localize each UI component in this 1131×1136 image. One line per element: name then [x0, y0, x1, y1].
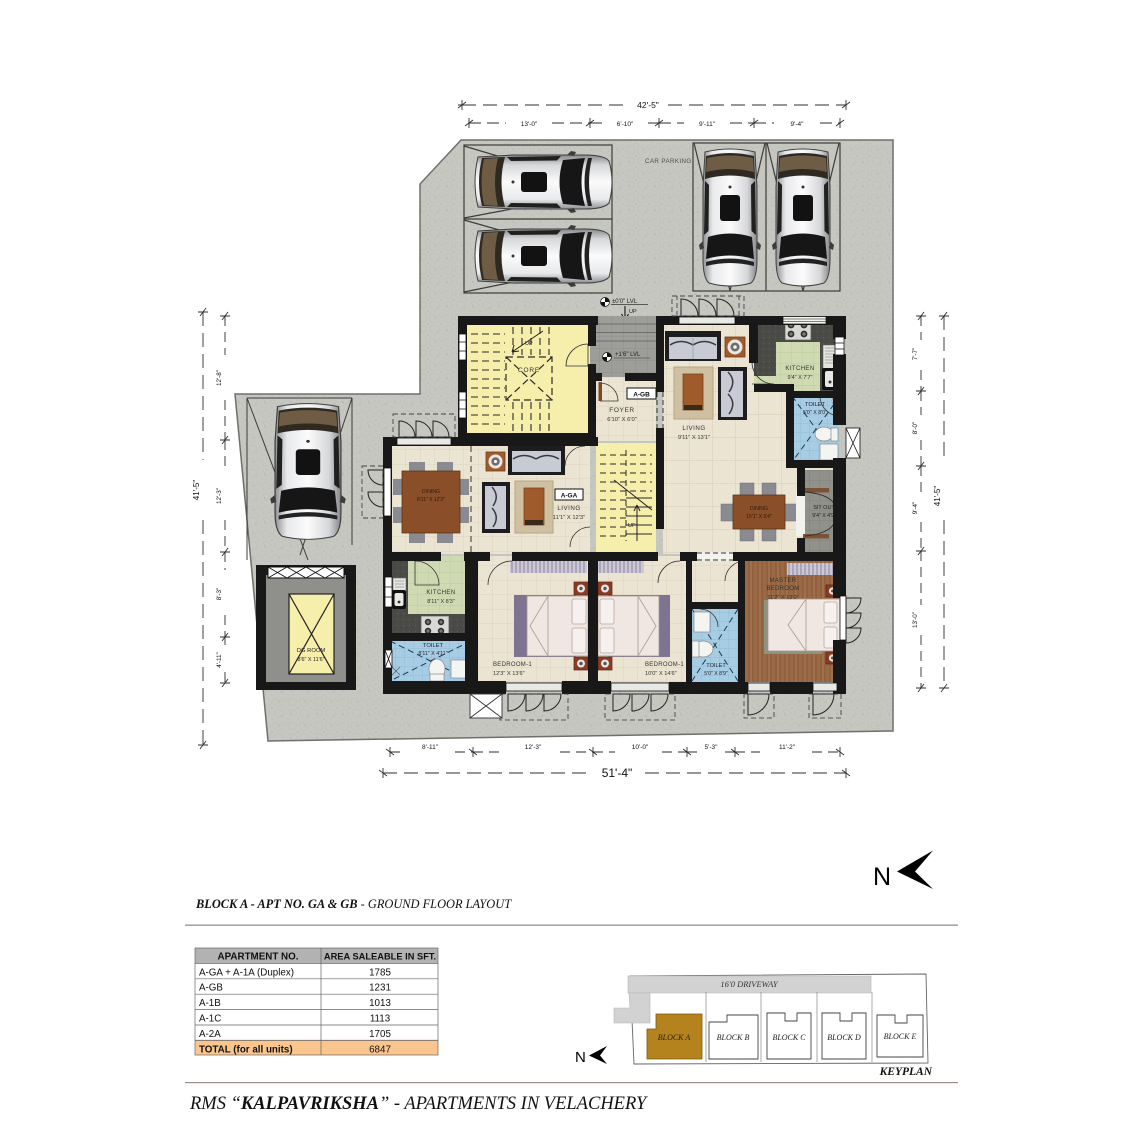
svg-text:6'-10": 6'-10": [617, 121, 634, 128]
svg-text:1705: 1705: [369, 1029, 391, 1040]
svg-text:5'0" X 8'0": 5'0" X 8'0": [803, 410, 827, 416]
svg-text:A-1B: A-1B: [199, 998, 221, 1009]
svg-text:TOTAL (for all units): TOTAL (for all units): [199, 1044, 293, 1055]
svg-text:12'-3": 12'-3": [216, 488, 223, 504]
svg-text:BLOCK A: BLOCK A: [658, 1033, 691, 1042]
svg-text:FOYER: FOYER: [609, 407, 634, 414]
svg-text:11'2" X 13'0": 11'2" X 13'0": [767, 595, 798, 601]
svg-text:16'0 DRIVEWAY: 16'0 DRIVEWAY: [720, 979, 778, 989]
svg-text:4'-11": 4'-11": [216, 652, 223, 668]
svg-text:DINING: DINING: [422, 489, 440, 495]
svg-text:9'11" X 13'1": 9'11" X 13'1": [678, 435, 710, 441]
svg-text:BEDROOM: BEDROOM: [766, 586, 799, 592]
svg-text:BLOCK A - APT NO. GA & GB - GR: BLOCK A - APT NO. GA & GB - GROUND FLOOR…: [195, 897, 512, 911]
svg-text:BEDROOM-1: BEDROOM-1: [493, 662, 532, 668]
svg-text:12'3" X 13'6": 12'3" X 13'6": [493, 671, 525, 677]
svg-text:15'1" X 9'4": 15'1" X 9'4": [746, 514, 772, 520]
svg-text:A-2A: A-2A: [199, 1029, 221, 1040]
svg-text:42'-5": 42'-5": [637, 100, 659, 110]
svg-text:BLOCK C: BLOCK C: [772, 1033, 806, 1042]
svg-text:8'-11": 8'-11": [422, 744, 439, 751]
svg-text:9'-11": 9'-11": [699, 121, 716, 128]
svg-text:DINING: DINING: [750, 506, 768, 512]
svg-text:8'11" X 12'3": 8'11" X 12'3": [417, 497, 445, 503]
svg-text:TOILET: TOILET: [423, 643, 444, 649]
svg-text:UP: UP: [525, 341, 533, 347]
svg-text:A-GA: A-GA: [561, 493, 578, 500]
svg-text:6847: 6847: [369, 1044, 391, 1055]
svg-text:10'0" X 14'6": 10'0" X 14'6": [645, 671, 677, 677]
svg-text:CAR PARKING: CAR PARKING: [645, 158, 692, 165]
svg-text:CORE: CORE: [518, 367, 540, 374]
svg-text:1113: 1113: [370, 1014, 391, 1025]
svg-text:13'-0": 13'-0": [521, 121, 538, 128]
svg-text:A-1C: A-1C: [199, 1014, 221, 1025]
svg-text:11'-2": 11'-2": [779, 744, 796, 751]
svg-text:AREA SALEABLE IN SFT.: AREA SALEABLE IN SFT.: [324, 952, 436, 962]
svg-text:8'-0": 8'-0": [912, 422, 919, 435]
svg-text:9'-4": 9'-4": [791, 121, 805, 128]
svg-text:APARTMENT NO.: APARTMENT NO.: [218, 952, 299, 963]
svg-text:RMS “KALPAVRIKSHA” - APARTMENT: RMS “KALPAVRIKSHA” - APARTMENTS IN VELAC…: [189, 1094, 648, 1114]
svg-text:DG ROOM: DG ROOM: [297, 648, 326, 654]
svg-text:5'0" X 8'9": 5'0" X 8'9": [704, 671, 728, 677]
svg-text:8'11" X 8'3": 8'11" X 8'3": [427, 599, 455, 605]
svg-text:SIT OUT: SIT OUT: [813, 505, 835, 511]
svg-text:A-GA + A-1A (Duplex): A-GA + A-1A (Duplex): [199, 967, 294, 978]
svg-text:7'-7": 7'-7": [912, 348, 919, 361]
svg-text:TOILET: TOILET: [706, 663, 726, 669]
svg-text:1013: 1013: [369, 998, 391, 1009]
svg-text:BLOCK B: BLOCK B: [717, 1033, 750, 1042]
svg-text:LIVING: LIVING: [557, 505, 580, 512]
svg-text:N: N: [873, 863, 891, 891]
svg-text:BEDROOM-1: BEDROOM-1: [645, 662, 684, 668]
svg-text:6'10" X 6'0": 6'10" X 6'0": [607, 417, 637, 423]
svg-text:A-GB: A-GB: [199, 983, 223, 994]
svg-text:+1'6" LVL: +1'6" LVL: [615, 352, 641, 358]
svg-text:8'11" X 4'11": 8'11" X 4'11": [418, 651, 447, 657]
svg-text:8'-3": 8'-3": [216, 588, 223, 601]
svg-text:9'-4": 9'-4": [912, 502, 919, 515]
svg-text:LIVING: LIVING: [682, 425, 705, 432]
svg-text:41'-5": 41'-5": [192, 480, 201, 501]
svg-text:KEYPLAN: KEYPLAN: [879, 1066, 933, 1078]
svg-text:12'-3": 12'-3": [525, 744, 542, 751]
svg-text:A-GB: A-GB: [633, 392, 650, 399]
svg-text:KITCHEN: KITCHEN: [426, 590, 455, 596]
svg-text:1231: 1231: [369, 983, 391, 994]
svg-text:9'4" X 7'7": 9'4" X 7'7": [788, 375, 813, 381]
svg-text:UP: UP: [629, 309, 637, 315]
svg-text:±0'0" LVL: ±0'0" LVL: [612, 299, 638, 305]
svg-text:KITCHEN: KITCHEN: [785, 366, 814, 372]
svg-text:13'-0": 13'-0": [912, 612, 919, 628]
svg-text:5'-3": 5'-3": [705, 744, 719, 751]
svg-text:1785: 1785: [369, 967, 391, 978]
svg-text:8'6" X 11'6": 8'6" X 11'6": [297, 657, 324, 663]
svg-text:12'-8": 12'-8": [216, 370, 223, 386]
svg-text:41'-5": 41'-5": [933, 486, 942, 507]
svg-text:BLOCK E: BLOCK E: [884, 1032, 917, 1041]
svg-text:51'-4": 51'-4": [602, 766, 633, 780]
svg-text:MASTER: MASTER: [770, 578, 797, 584]
svg-text:9'4" X 4'9": 9'4" X 4'9": [812, 513, 836, 519]
svg-text:11'1" X 12'3": 11'1" X 12'3": [553, 515, 585, 521]
svg-text:10'-0": 10'-0": [632, 744, 649, 751]
svg-text:UP: UP: [628, 523, 636, 529]
svg-text:BLOCK D: BLOCK D: [827, 1033, 861, 1042]
svg-text:N: N: [575, 1049, 586, 1066]
